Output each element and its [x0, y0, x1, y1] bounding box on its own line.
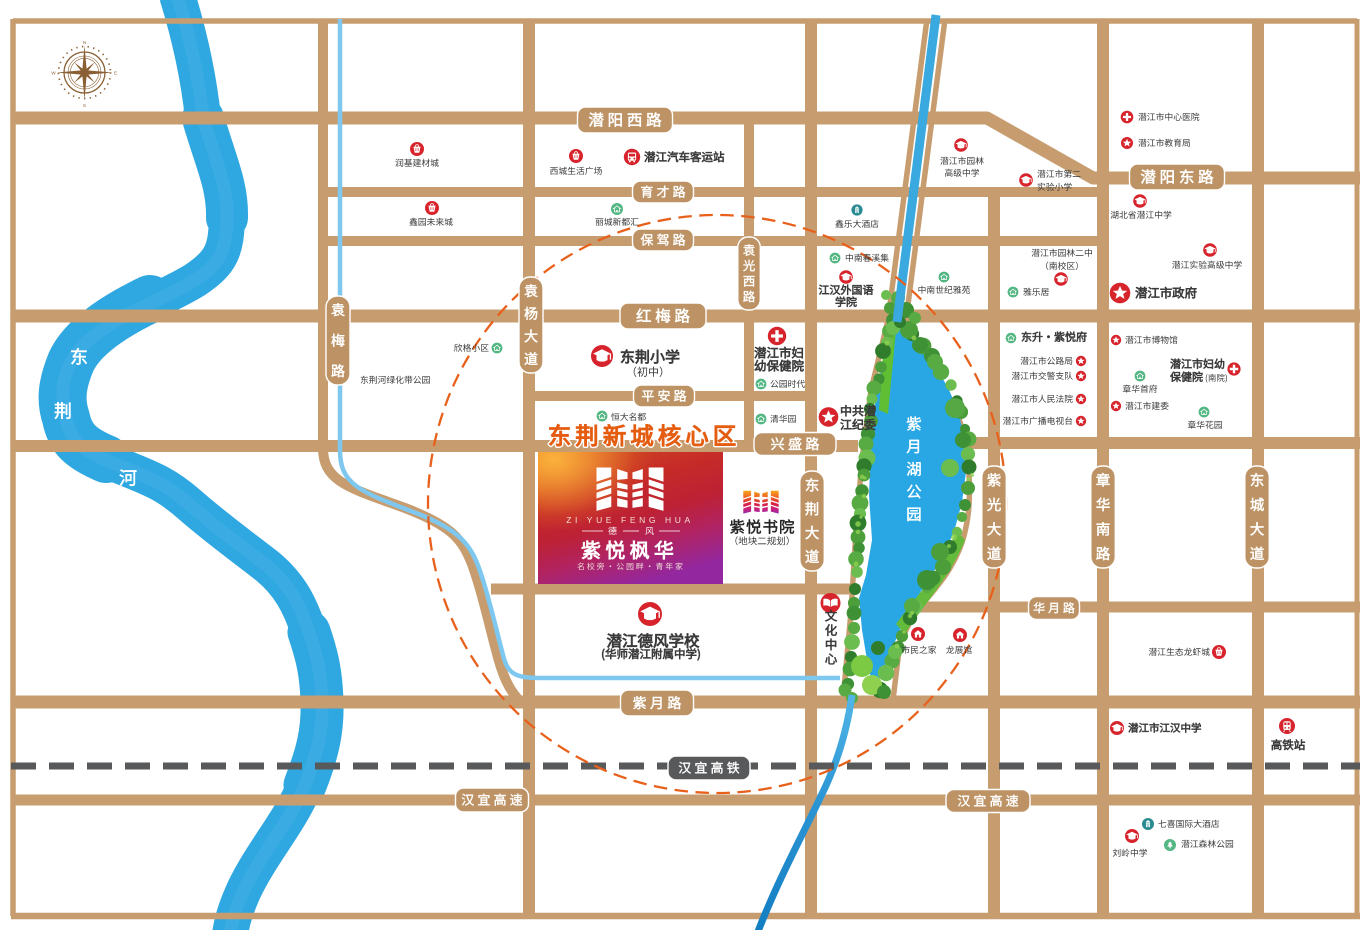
svg-text:N: N: [83, 40, 86, 45]
svg-text:ZI YUE FENG HUA: ZI YUE FENG HUA: [566, 515, 694, 525]
svg-text:S: S: [83, 103, 86, 108]
svg-text:E: E: [114, 71, 117, 76]
